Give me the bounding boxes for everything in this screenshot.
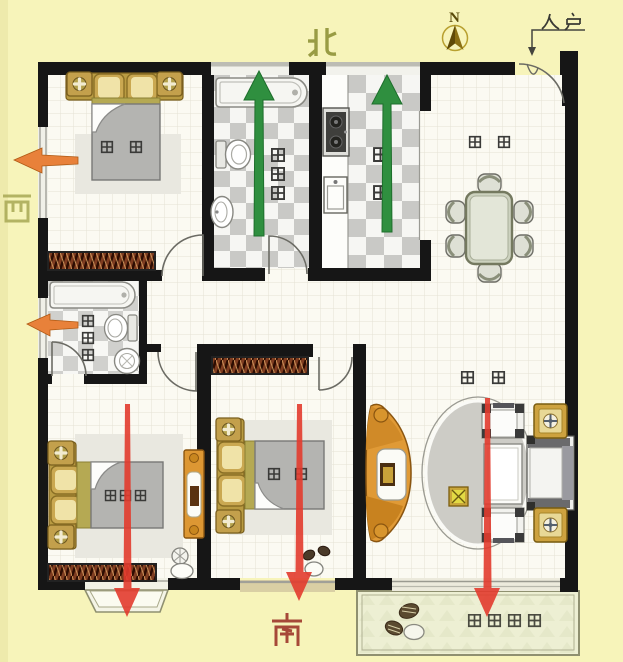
svg-text:N: N xyxy=(449,10,460,26)
